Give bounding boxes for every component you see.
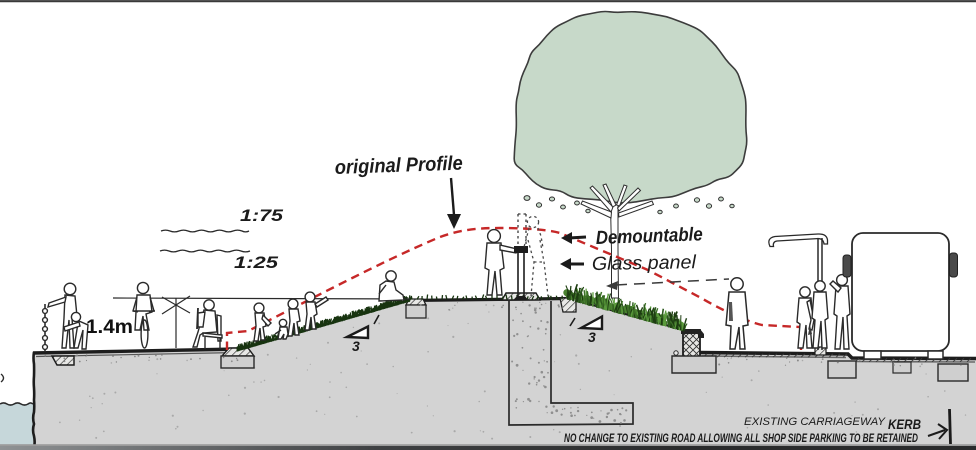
svg-text:3: 3 bbox=[588, 329, 596, 345]
svg-text:3: 3 bbox=[352, 338, 360, 354]
svg-text:EXISTING CARRIAGEWAY: EXISTING CARRIAGEWAY bbox=[744, 416, 886, 428]
svg-text:1.4m: 1.4m bbox=[86, 317, 133, 338]
svg-text:original Profile: original Profile bbox=[334, 153, 463, 179]
svg-text:1:75: 1:75 bbox=[240, 207, 284, 225]
svg-text:1:25: 1:25 bbox=[234, 254, 279, 272]
svg-text:Demountable: Demountable bbox=[595, 224, 703, 249]
svg-text:NO CHANGE TO EXISTING ROAD ALL: NO CHANGE TO EXISTING ROAD ALLOWING ALL … bbox=[564, 433, 918, 445]
svg-text:KERB: KERB bbox=[888, 417, 921, 432]
svg-text:Glass panel: Glass panel bbox=[592, 252, 697, 275]
